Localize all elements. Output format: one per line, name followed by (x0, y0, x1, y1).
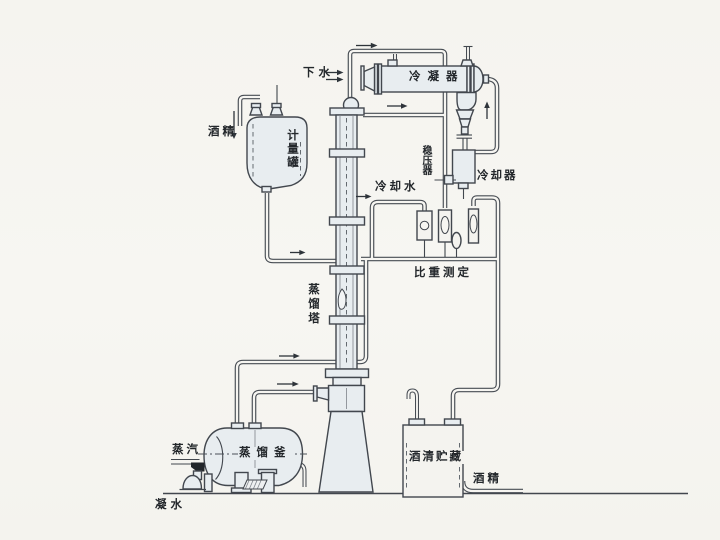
label-distillation-kettle: 蒸馏釜 (238, 447, 293, 460)
condenser-left-reducer (364, 67, 375, 91)
pipe-tank-vent-hook (409, 391, 418, 422)
label-steam: 蒸汽 (172, 444, 201, 457)
column-neck (333, 378, 361, 386)
cooler-body (453, 150, 476, 183)
steam-valve (191, 463, 205, 472)
condenser-left-cap (361, 66, 364, 90)
process-diagram (0, 0, 720, 540)
column-top-plate (330, 108, 364, 115)
column-base-nozzle (317, 388, 329, 400)
column-flange (330, 217, 365, 225)
label-gravity-measurement: 比重测定 (414, 267, 472, 280)
reducer-stack (457, 93, 477, 151)
diagram-canvas: 下水 冷凝器 酒精 计量罐 稳压器 冷却水 冷却器 比重测定 蒸馏塔 蒸馏釜 蒸… (0, 0, 720, 540)
stabilizer-fitting (445, 176, 454, 185)
label-cooling-water: 冷却水 (375, 181, 419, 194)
label-condensate: 凝水 (155, 499, 186, 512)
column-bottom-flange (326, 369, 369, 378)
label-drain-water: 下水 (303, 67, 334, 80)
label-alcohol-product: 酒精 (473, 473, 502, 486)
condenser-inlet-nozzle (388, 60, 397, 66)
label-alcohol-feed: 酒精 (208, 126, 237, 139)
column-flange (330, 316, 365, 324)
column-skirt (319, 412, 373, 493)
metering-tank-body (247, 117, 307, 189)
condenser-vent-nozzle (461, 60, 473, 66)
pipe-feed-to-column (267, 193, 337, 261)
label-metering-tank: 计量罐 (286, 129, 298, 170)
condenser-right-dome (474, 66, 483, 92)
label-pressure-stabilizer: 稳压器 (419, 145, 431, 175)
label-distillation-tower: 蒸馏塔 (307, 283, 319, 327)
label-condenser: 冷凝器 (409, 71, 465, 84)
column-flange (330, 266, 364, 274)
column-flange (330, 149, 365, 157)
hydrometer-float (452, 233, 461, 249)
gravity-measurement-devices (417, 209, 479, 257)
cooler-vessel (435, 150, 476, 199)
pipe-column-base-to-kettle (254, 392, 320, 425)
label-alcohol-storage: 酒清贮藏 (408, 451, 464, 464)
label-cooler: 冷却器 (477, 170, 518, 183)
